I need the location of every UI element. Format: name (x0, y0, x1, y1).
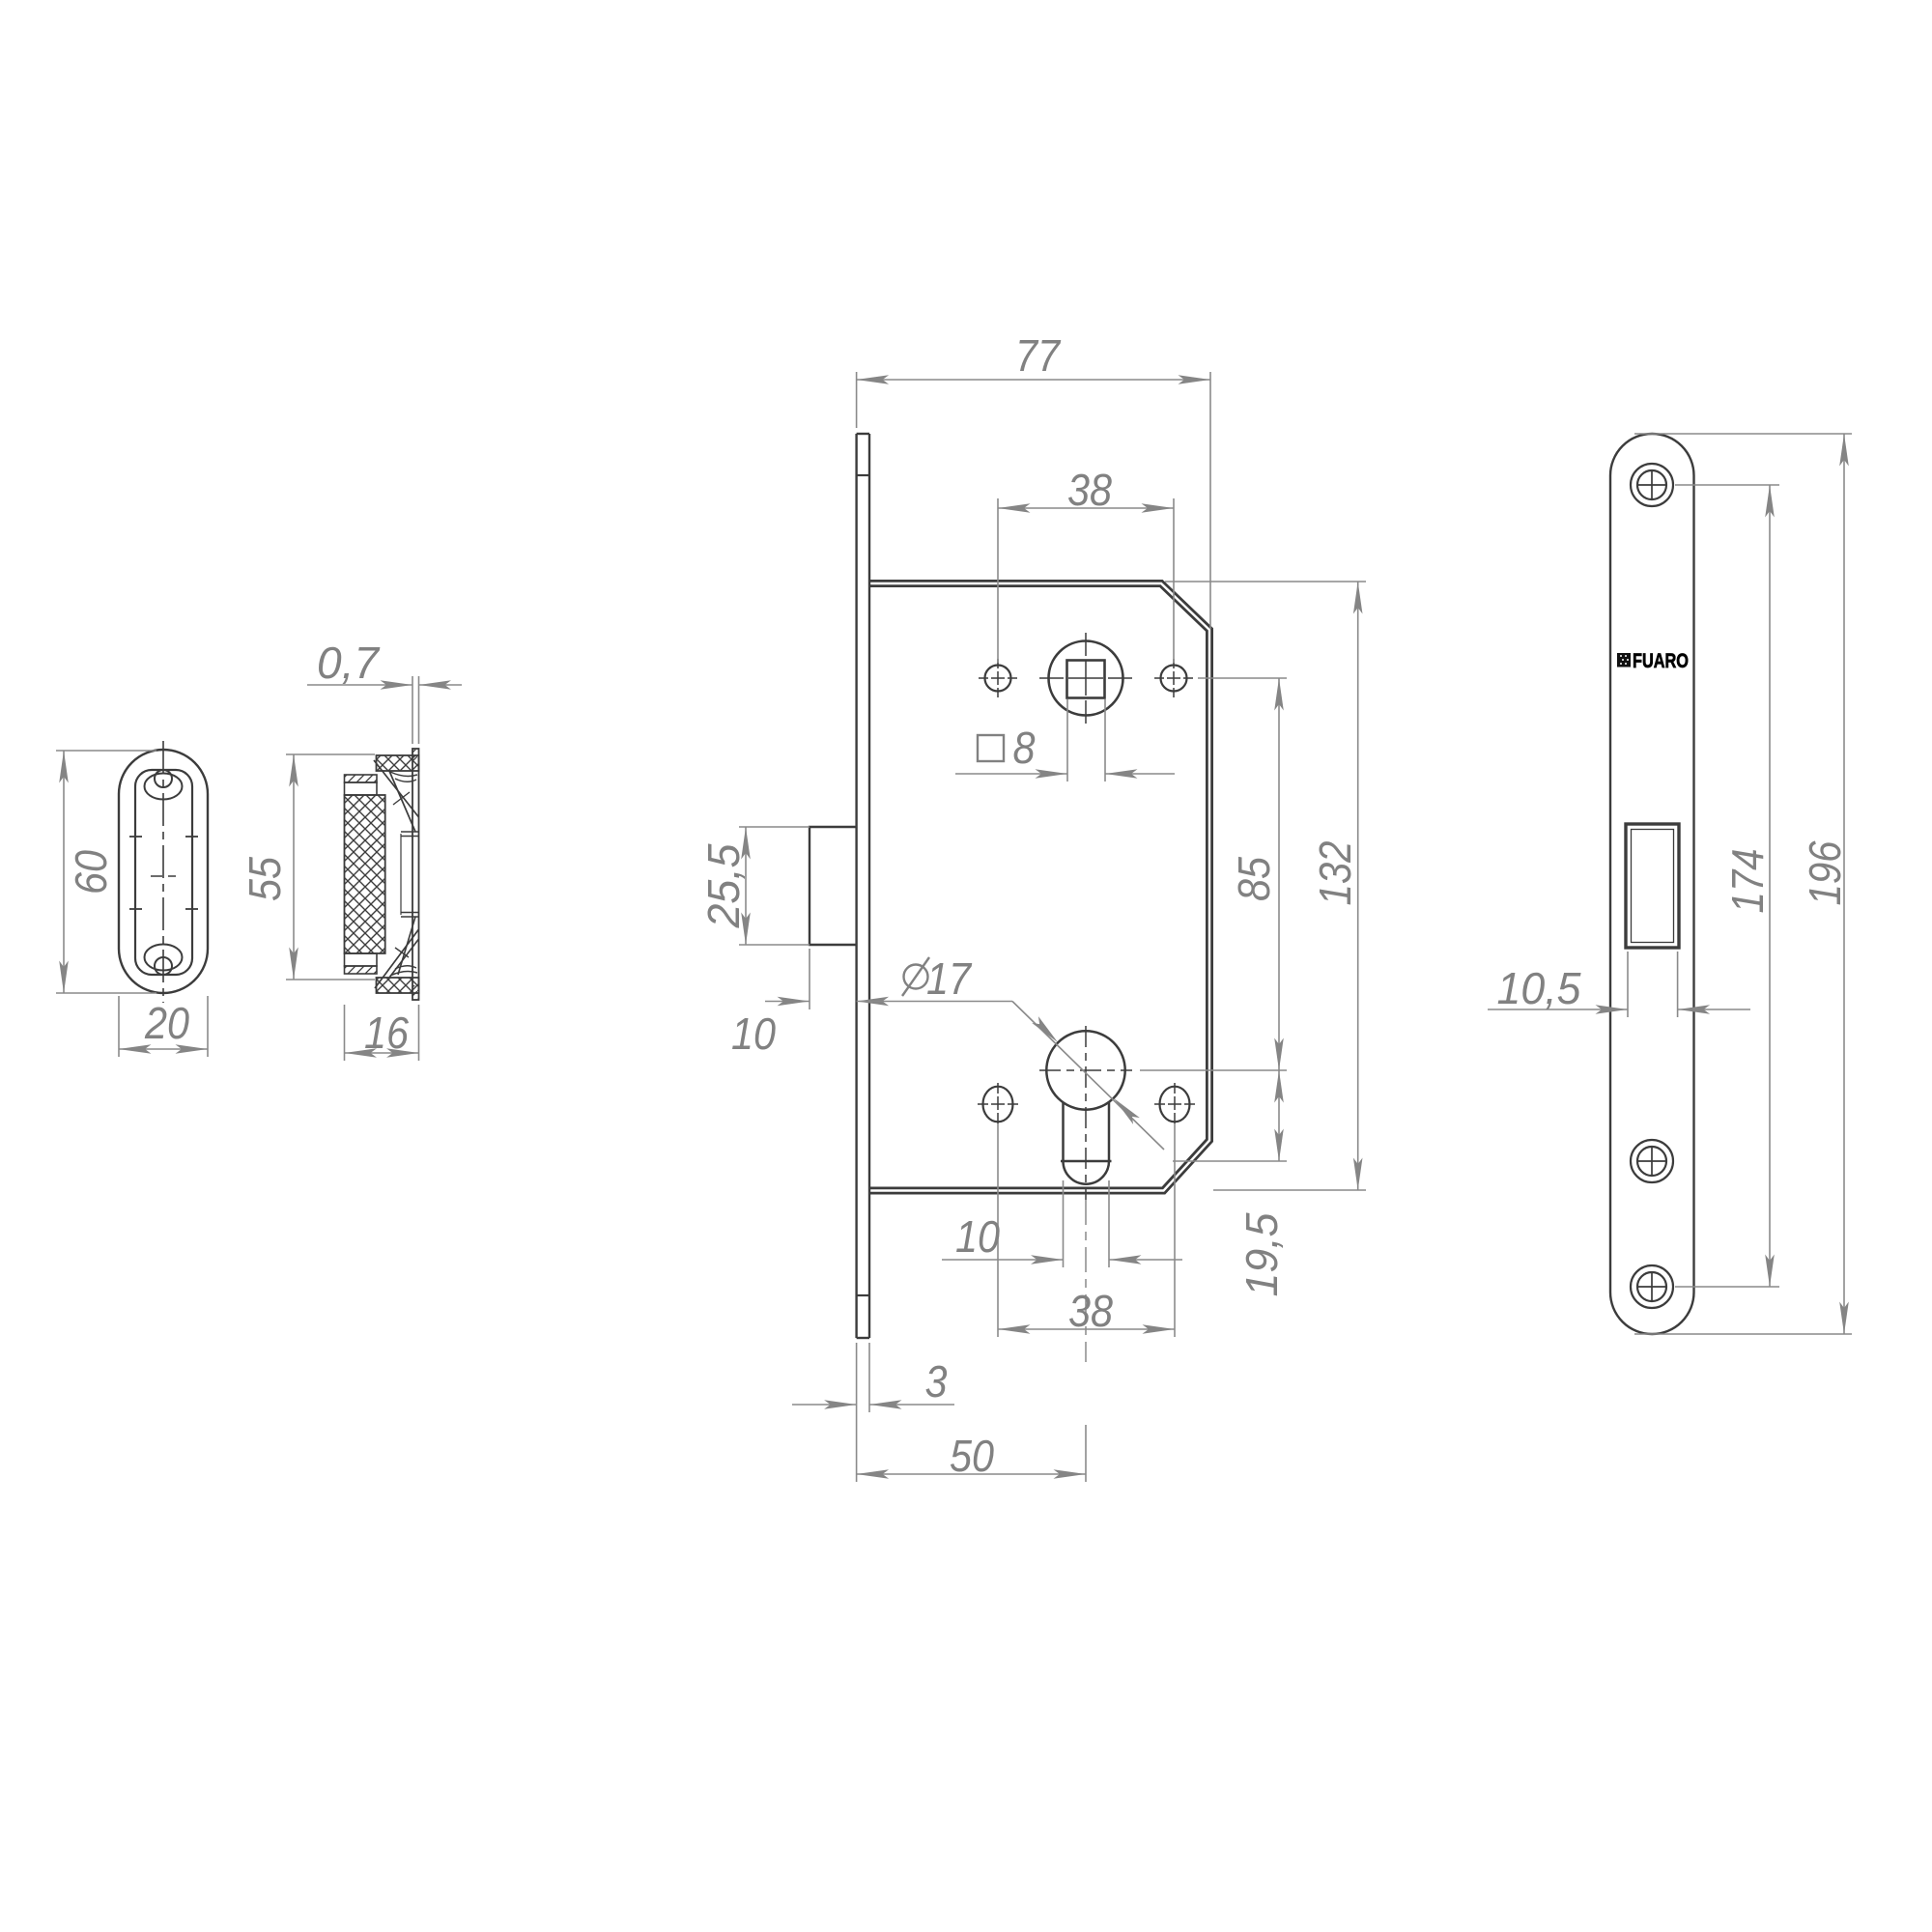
svg-text:38: 38 (1068, 1286, 1113, 1336)
svg-text:8: 8 (1013, 723, 1036, 773)
svg-text:10: 10 (955, 1211, 1000, 1262)
svg-text:16: 16 (364, 1008, 409, 1058)
svg-text:10: 10 (731, 1009, 776, 1059)
svg-text:25,5: 25,5 (698, 843, 749, 928)
svg-text:20: 20 (144, 998, 189, 1048)
svg-text:19,5: 19,5 (1236, 1212, 1287, 1296)
svg-text:85: 85 (1229, 857, 1279, 901)
svg-text:196: 196 (1800, 840, 1850, 905)
svg-text:50: 50 (950, 1431, 994, 1481)
svg-text:132: 132 (1310, 841, 1360, 906)
svg-text:10,5: 10,5 (1497, 963, 1581, 1013)
svg-text:38: 38 (1067, 465, 1112, 515)
svg-text:174: 174 (1722, 849, 1773, 914)
svg-text:60: 60 (66, 850, 116, 895)
svg-text:55: 55 (240, 857, 290, 901)
svg-text:3: 3 (925, 1356, 948, 1406)
svg-text:FUARO: FUARO (1633, 650, 1689, 672)
svg-text:77: 77 (1015, 330, 1061, 381)
svg-text:17: 17 (926, 953, 972, 1004)
svg-text:0,7: 0,7 (317, 638, 380, 688)
